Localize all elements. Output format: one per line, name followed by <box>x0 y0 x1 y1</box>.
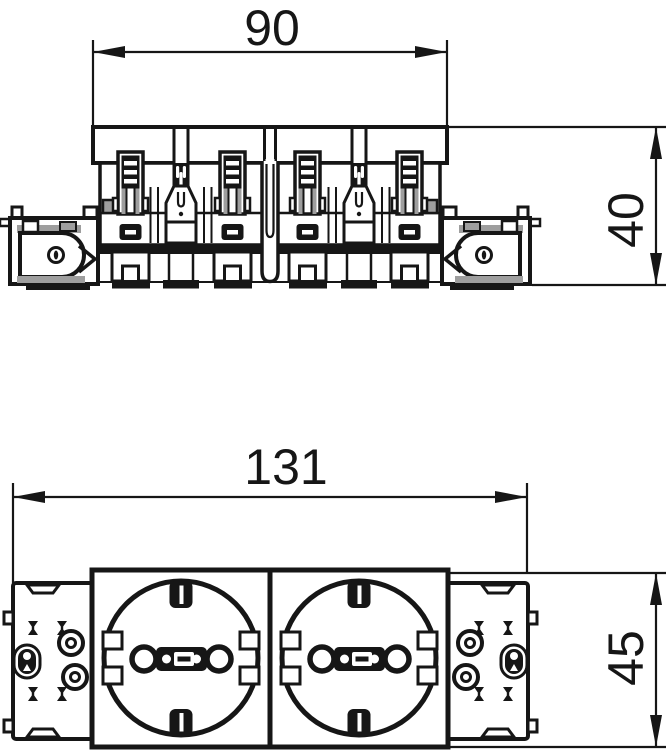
mounting-clamp-right <box>442 207 540 290</box>
front-plate <box>93 127 447 163</box>
side-adapter-right <box>447 583 537 739</box>
front-view-part <box>4 570 537 747</box>
socket-module-right <box>270 570 448 747</box>
technical-drawing-canvas: 90 40 131 <box>0 0 669 751</box>
mounting-clamp-left <box>0 207 98 290</box>
technical-drawing-page: 90 40 131 <box>0 0 669 751</box>
socket-module-left <box>92 570 270 747</box>
dim-45-label: 45 <box>598 630 654 686</box>
dim-90-label: 90 <box>244 0 300 56</box>
dim-131-label: 131 <box>244 439 327 495</box>
dim-40-label: 40 <box>598 192 654 248</box>
side-adapter-left <box>4 583 94 739</box>
